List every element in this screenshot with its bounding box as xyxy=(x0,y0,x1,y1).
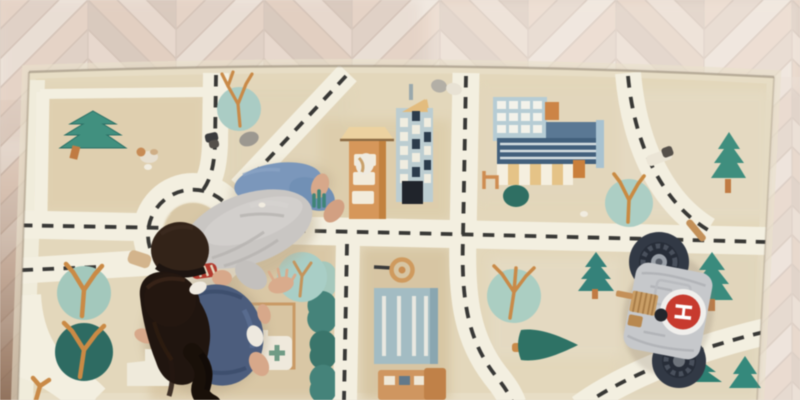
svg-text:H: H xyxy=(668,302,697,322)
